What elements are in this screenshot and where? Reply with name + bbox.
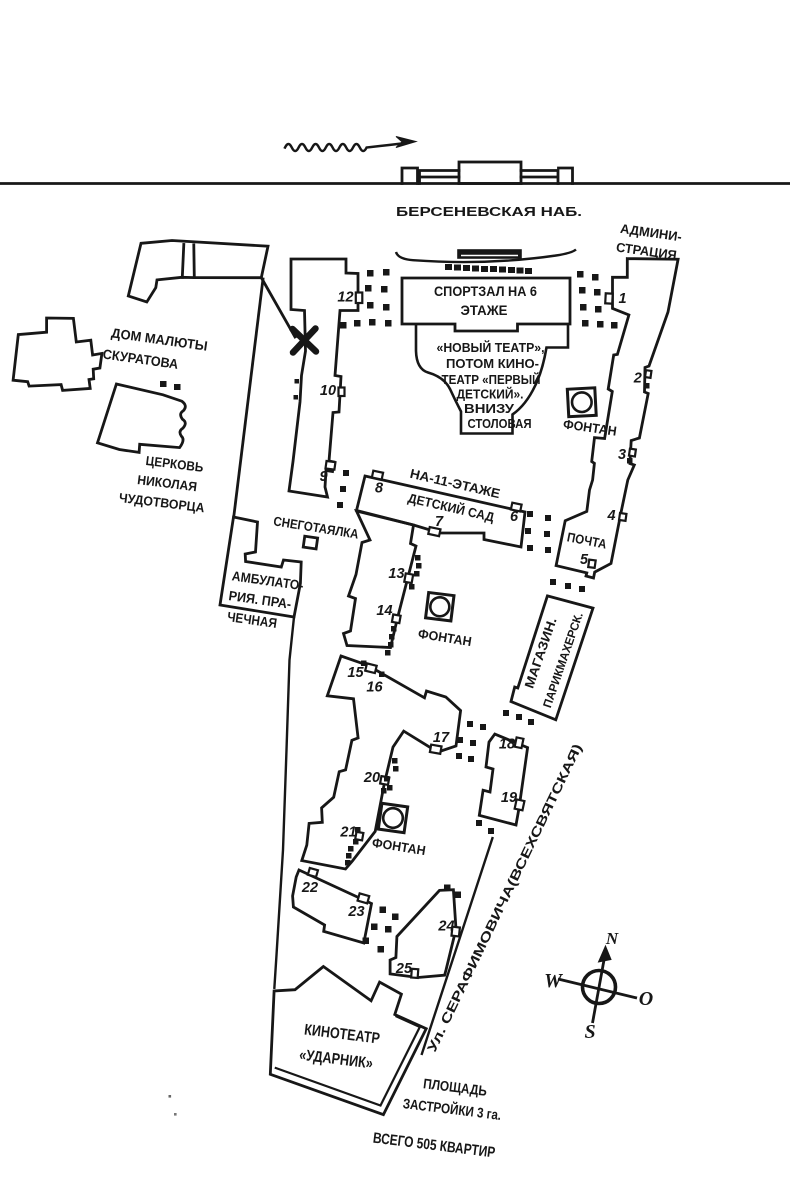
svg-text:«НОВЫЙ ТЕАТР»,: «НОВЫЙ ТЕАТР»,: [437, 340, 545, 355]
svg-text:O: O: [639, 988, 653, 1010]
svg-text:18: 18: [499, 737, 516, 753]
svg-text:16: 16: [366, 680, 383, 696]
svg-text:3: 3: [618, 447, 626, 463]
svg-text:1: 1: [618, 291, 626, 307]
svg-text:СТОЛОВАЯ: СТОЛОВАЯ: [468, 416, 532, 431]
svg-text:23: 23: [347, 904, 364, 920]
svg-text:ТЕАТР «ПЕРВЫЙ: ТЕАТР «ПЕРВЫЙ: [442, 372, 541, 387]
svg-text:S: S: [584, 1021, 595, 1043]
svg-text:ЭТАЖЕ: ЭТАЖЕ: [461, 303, 508, 318]
svg-text:СПОРТЗАЛ НА 6: СПОРТЗАЛ НА 6: [434, 284, 537, 299]
svg-text:2: 2: [633, 371, 642, 387]
svg-text:12: 12: [337, 290, 353, 306]
svg-text:10: 10: [320, 383, 336, 399]
svg-text:ПОТОМ КИНО-: ПОТОМ КИНО-: [446, 356, 539, 371]
svg-text:14: 14: [376, 603, 392, 619]
svg-text:9: 9: [319, 469, 327, 485]
svg-text:БЕРСЕНЕВСКАЯ НАБ.: БЕРСЕНЕВСКАЯ НАБ.: [396, 204, 582, 219]
svg-text:ДЕТСКИЙ».: ДЕТСКИЙ».: [457, 387, 524, 402]
svg-text:W: W: [544, 970, 563, 992]
svg-text:17: 17: [433, 730, 450, 746]
svg-text:15: 15: [347, 665, 364, 681]
svg-text:N: N: [605, 929, 619, 948]
svg-text:21: 21: [339, 825, 356, 841]
svg-text:4: 4: [606, 508, 615, 524]
svg-text:20: 20: [363, 770, 380, 786]
svg-text:22: 22: [301, 880, 318, 896]
svg-text:ВНИЗУ: ВНИЗУ: [464, 401, 515, 416]
svg-text:8: 8: [375, 481, 384, 497]
svg-text:13: 13: [388, 566, 404, 582]
